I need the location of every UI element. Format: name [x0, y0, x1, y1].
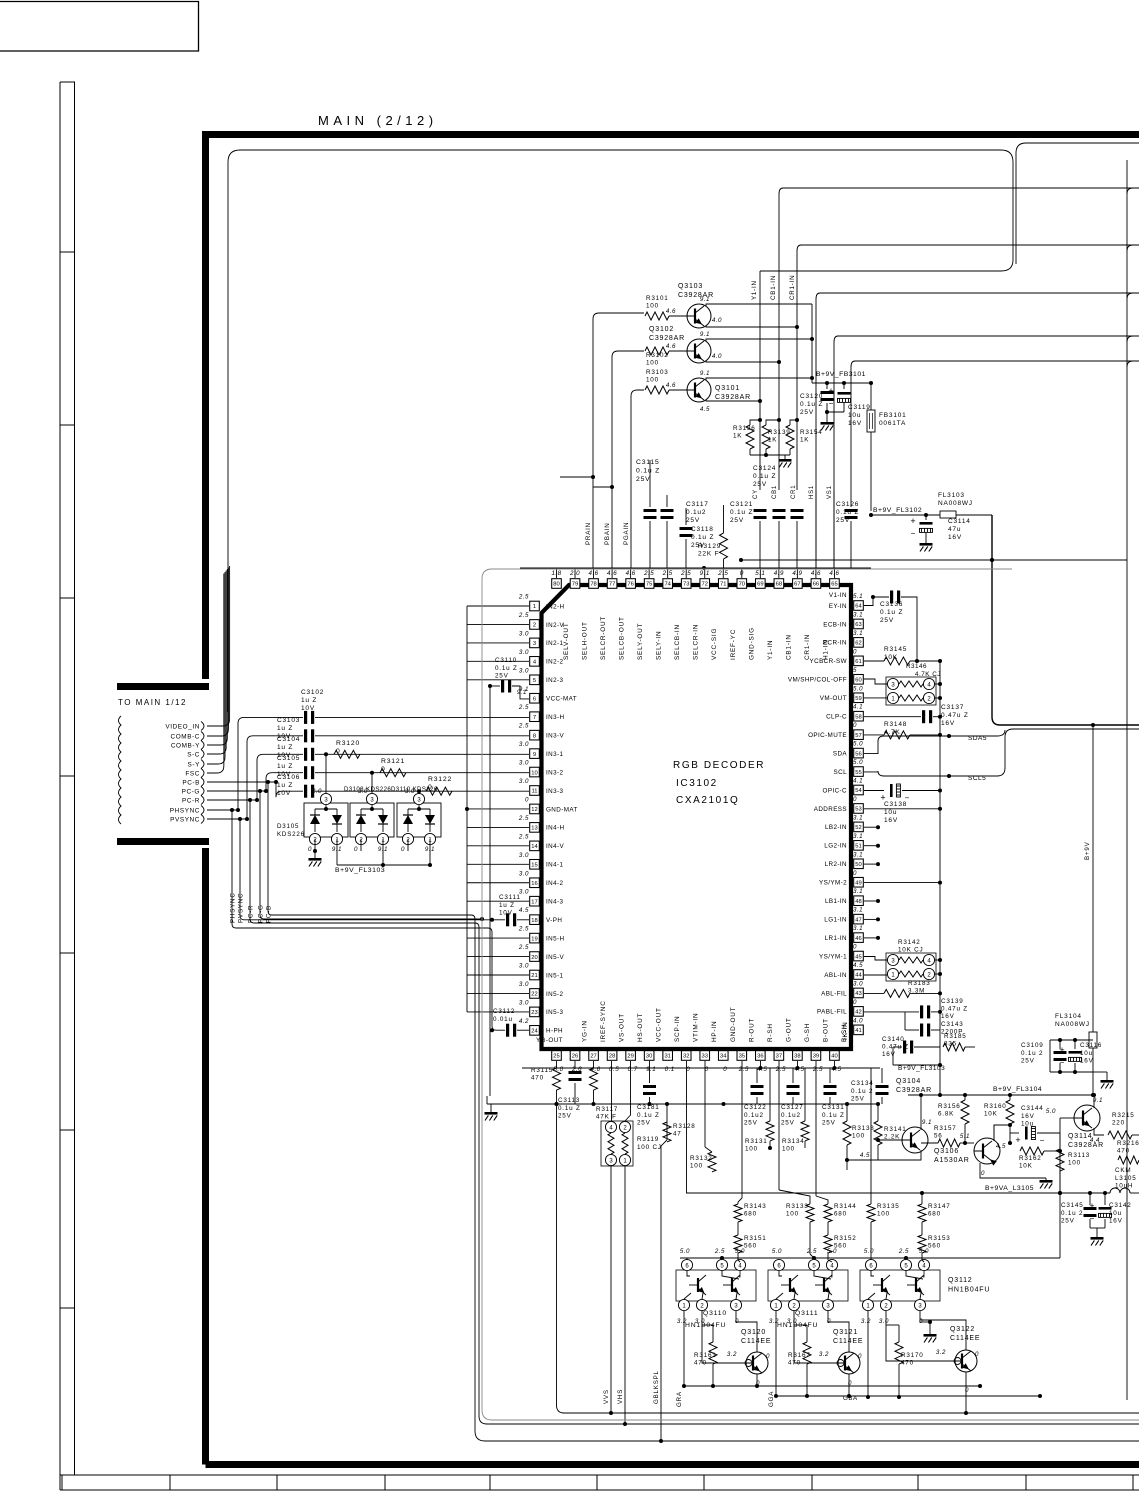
svg-text:10V: 10V — [499, 910, 513, 917]
svg-text:50: 50 — [855, 862, 861, 868]
svg-text:R3122: R3122 — [428, 776, 452, 783]
svg-text:2.5: 2.5 — [898, 1248, 909, 1255]
svg-text:HN1B04FU: HN1B04FU — [685, 1322, 726, 1329]
svg-text:EY-IN: EY-IN — [829, 603, 847, 610]
svg-text:C3114: C3114 — [948, 518, 971, 525]
svg-text:5: 5 — [853, 667, 857, 674]
svg-text:C3122: C3122 — [744, 1104, 767, 1111]
svg-text:VCC-SIG: VCC-SIG — [711, 628, 718, 660]
svg-text:IN4-3: IN4-3 — [546, 899, 563, 906]
svg-text:3.0: 3.0 — [519, 649, 529, 656]
svg-text:R3154: R3154 — [800, 429, 823, 436]
svg-text:IN4-V: IN4-V — [546, 843, 564, 850]
svg-text:H1-IN: H1-IN — [822, 639, 829, 660]
svg-text:B-SH: B-SH — [841, 1024, 848, 1042]
svg-text:SDA: SDA — [833, 750, 848, 757]
svg-text:R3151: R3151 — [744, 1235, 767, 1242]
svg-text:R3147: R3147 — [928, 1203, 951, 1210]
svg-text:80: 80 — [553, 582, 559, 588]
svg-text:3.0: 3.0 — [519, 760, 529, 767]
svg-text:R3148: R3148 — [884, 721, 907, 728]
svg-text:21: 21 — [531, 973, 537, 979]
svg-text:0: 0 — [853, 648, 857, 655]
svg-text:C3116: C3116 — [1080, 1042, 1102, 1049]
svg-text:1u Z: 1u Z — [277, 782, 293, 789]
svg-text:C3124: C3124 — [753, 465, 776, 472]
svg-text:0.1u Z: 0.1u Z — [558, 1105, 581, 1112]
svg-text:3.0: 3.0 — [519, 667, 529, 674]
svg-text:5.0: 5.0 — [853, 685, 863, 692]
svg-text:16V: 16V — [948, 534, 962, 541]
svg-text:9.1: 9.1 — [646, 1066, 656, 1073]
svg-text:D3105: D3105 — [277, 823, 299, 830]
svg-text:0.1u2: 0.1u2 — [686, 509, 706, 516]
svg-text:25V: 25V — [800, 409, 814, 416]
svg-text:R3120: R3120 — [336, 740, 360, 747]
svg-text:5.0: 5.0 — [919, 1248, 929, 1255]
svg-text:+: + — [910, 516, 915, 526]
svg-text:0.1u 2: 0.1u 2 — [851, 1088, 873, 1095]
svg-text:FSC: FSC — [185, 770, 200, 777]
svg-text:5.1: 5.1 — [853, 593, 863, 600]
svg-text:0.1u 2: 0.1u 2 — [1061, 1210, 1083, 1217]
svg-text:FL3103: FL3103 — [938, 492, 965, 499]
svg-text:IN5-3: IN5-3 — [546, 1009, 563, 1016]
svg-text:−: − — [829, 399, 834, 408]
svg-text:2.0: 2.0 — [569, 570, 580, 577]
svg-text:27: 27 — [590, 1054, 596, 1060]
svg-text:42: 42 — [855, 1010, 861, 1016]
svg-text:SCL5: SCL5 — [968, 775, 986, 782]
svg-text:ECB-IN: ECB-IN — [823, 621, 847, 628]
svg-text:5.0: 5.0 — [735, 1248, 745, 1255]
svg-text:26: 26 — [572, 1054, 578, 1060]
svg-text:14: 14 — [531, 844, 538, 850]
svg-text:C3127: C3127 — [781, 1104, 804, 1111]
svg-text:47: 47 — [855, 917, 861, 923]
svg-text:C3111: C3111 — [499, 894, 521, 901]
svg-text:18: 18 — [531, 918, 537, 924]
svg-text:59: 59 — [855, 696, 861, 702]
svg-text:4.1: 4.1 — [853, 704, 863, 711]
svg-text:100: 100 — [646, 376, 659, 383]
svg-text:PC-R: PC-R — [182, 797, 200, 804]
svg-text:−: − — [911, 529, 916, 538]
svg-text:IREF-YC: IREF-YC — [730, 629, 737, 660]
svg-text:3.0: 3.0 — [519, 778, 529, 785]
svg-text:HS-OUT: HS-OUT — [637, 1013, 644, 1042]
svg-text:LB1-IN: LB1-IN — [825, 898, 847, 905]
svg-text:3.2: 3.2 — [936, 1349, 946, 1356]
svg-text:25V: 25V — [1061, 1218, 1075, 1225]
svg-text:Q3110: Q3110 — [703, 1310, 727, 1317]
svg-text:C3181: C3181 — [637, 1104, 660, 1111]
svg-text:VTIM-IN: VTIM-IN — [693, 1013, 700, 1042]
svg-text:C114EE: C114EE — [833, 1338, 863, 1345]
svg-text:3.0: 3.0 — [519, 963, 529, 970]
svg-text:4.7K: 4.7K — [884, 729, 901, 736]
svg-text:41: 41 — [855, 1028, 861, 1034]
svg-text:R3162: R3162 — [1019, 1155, 1042, 1162]
svg-text:65: 65 — [831, 582, 837, 588]
svg-text:C114EE: C114EE — [741, 1338, 771, 1345]
svg-text:10u: 10u — [1080, 1050, 1093, 1057]
svg-text:0: 0 — [858, 1353, 862, 1360]
svg-text:0.47u Z: 0.47u Z — [941, 1006, 968, 1013]
svg-text:470: 470 — [694, 1359, 707, 1366]
svg-text:28: 28 — [609, 1054, 615, 1060]
svg-text:5.0: 5.0 — [1046, 1108, 1056, 1115]
svg-text:−: − — [1090, 1214, 1095, 1223]
svg-text:1u Z: 1u Z — [301, 697, 317, 704]
svg-text:5.0: 5.0 — [853, 759, 863, 766]
svg-text:62: 62 — [855, 641, 861, 647]
svg-text:3.0: 3.0 — [312, 788, 322, 795]
svg-text:470: 470 — [901, 1359, 914, 1366]
svg-text:30: 30 — [646, 1054, 652, 1060]
svg-text:77: 77 — [609, 582, 615, 588]
svg-text:79: 79 — [572, 582, 578, 588]
svg-text:CY: CY — [753, 489, 759, 499]
svg-text:63: 63 — [855, 622, 861, 628]
svg-text:0.1u Z: 0.1u Z — [800, 401, 823, 408]
svg-text:SCP-IN: SCP-IN — [674, 1016, 681, 1042]
svg-text:C3115: C3115 — [636, 459, 660, 466]
svg-text:C3143: C3143 — [941, 1021, 964, 1028]
svg-text:C3120: C3120 — [800, 393, 823, 400]
svg-text:10K: 10K — [984, 1111, 998, 1118]
svg-text:R3142: R3142 — [898, 939, 921, 946]
svg-text:0: 0 — [853, 722, 857, 729]
svg-text:9.1: 9.1 — [700, 331, 710, 338]
svg-text:10K: 10K — [1019, 1163, 1033, 1170]
svg-text:9.1: 9.1 — [700, 370, 710, 377]
svg-text:R3156: R3156 — [938, 1103, 961, 1110]
svg-text:2.5: 2.5 — [518, 723, 529, 730]
svg-text:1u Z: 1u Z — [277, 744, 293, 751]
svg-text:B+9V_FL3103: B+9V_FL3103 — [335, 867, 385, 874]
svg-text:SELCR-IN: SELCR-IN — [693, 624, 700, 660]
svg-text:2.5: 2.5 — [518, 944, 529, 951]
svg-text:0.1u2: 0.1u2 — [781, 1112, 801, 1119]
svg-text:IN2-H: IN2-H — [546, 603, 564, 610]
svg-text:3: 3 — [533, 641, 536, 647]
svg-text:Y1-IN: Y1-IN — [751, 280, 758, 300]
svg-text:3.0: 3.0 — [853, 980, 863, 987]
svg-text:0.5: 0.5 — [609, 1066, 619, 1073]
svg-text:16V: 16V — [941, 1013, 955, 1020]
svg-text:7: 7 — [533, 715, 536, 721]
svg-text:5.0: 5.0 — [553, 1066, 563, 1073]
svg-text:69: 69 — [757, 582, 763, 588]
svg-text:19: 19 — [531, 936, 537, 942]
svg-text:GGA: GGA — [768, 1391, 775, 1407]
svg-text:IN2-2: IN2-2 — [546, 659, 563, 666]
svg-text:Q3101: Q3101 — [715, 385, 740, 392]
svg-text:SELY-IN: SELY-IN — [656, 631, 663, 660]
svg-text:VCC-OUT: VCC-OUT — [656, 1007, 663, 1042]
svg-text:B+9V_FL3102: B+9V_FL3102 — [873, 507, 922, 514]
svg-text:34: 34 — [720, 1054, 727, 1060]
svg-text:10V: 10V — [301, 705, 315, 712]
svg-text:Q3114: Q3114 — [1068, 1133, 1093, 1140]
svg-text:0: 0 — [981, 1170, 985, 1177]
svg-text:GRA: GRA — [676, 1391, 683, 1407]
svg-text:2.5: 2.5 — [806, 1248, 817, 1255]
svg-text:C3139: C3139 — [941, 998, 964, 1005]
svg-text:R3141: R3141 — [884, 1126, 907, 1133]
svg-text:R3167: R3167 — [788, 1352, 811, 1359]
svg-text:53: 53 — [855, 807, 861, 813]
svg-text:5.0: 5.0 — [772, 1248, 782, 1255]
svg-text:0061TA: 0061TA — [879, 420, 906, 427]
svg-text:40: 40 — [831, 1054, 837, 1060]
svg-text:4.6: 4.6 — [666, 343, 676, 350]
svg-text:C3142: C3142 — [1109, 1202, 1132, 1209]
svg-text:C3121: C3121 — [730, 501, 753, 508]
svg-text:IN5-V: IN5-V — [546, 954, 564, 961]
svg-text:C114EE: C114EE — [950, 1335, 980, 1342]
svg-text:3.1: 3.1 — [853, 888, 863, 895]
svg-text:2.5: 2.5 — [518, 926, 529, 933]
svg-text:12: 12 — [531, 807, 537, 813]
svg-text:2.5: 2.5 — [518, 612, 529, 619]
svg-text:4.5: 4.5 — [700, 406, 710, 413]
svg-text:100: 100 — [646, 359, 659, 366]
svg-text:67: 67 — [794, 582, 800, 588]
svg-text:COMB-C: COMB-C — [170, 733, 200, 740]
svg-text:IN5-1: IN5-1 — [546, 972, 563, 979]
svg-text:B+9V_FB3101: B+9V_FB3101 — [816, 371, 866, 378]
svg-text:16V: 16V — [1080, 1058, 1094, 1065]
svg-text:25V: 25V — [822, 1120, 836, 1127]
svg-text:HN1B04FU: HN1B04FU — [948, 1287, 990, 1294]
svg-text:1: 1 — [533, 604, 536, 610]
svg-text:0.7: 0.7 — [628, 1066, 638, 1073]
svg-text:2.5: 2.5 — [643, 570, 654, 577]
svg-text:23: 23 — [531, 1010, 537, 1016]
svg-text:16V: 16V — [884, 817, 898, 824]
svg-text:335: 335 — [944, 1040, 957, 1047]
svg-text:1u Z: 1u Z — [277, 763, 293, 770]
svg-text:SELY-OUT: SELY-OUT — [637, 623, 644, 660]
svg-text:10V: 10V — [277, 790, 291, 797]
svg-text:76: 76 — [627, 582, 633, 588]
svg-text:SDA5: SDA5 — [968, 735, 987, 742]
svg-text:R3117: R3117 — [596, 1106, 618, 1113]
svg-text:IN3-V: IN3-V — [546, 732, 564, 739]
svg-text:Q3102: Q3102 — [649, 326, 674, 333]
svg-text:9: 9 — [533, 752, 536, 758]
svg-text:R3113: R3113 — [1068, 1152, 1090, 1159]
svg-text:C3145: C3145 — [1061, 1202, 1084, 1209]
svg-text:C3105: C3105 — [277, 755, 300, 762]
svg-text:YG-IN: YG-IN — [582, 1020, 589, 1042]
svg-text:25V: 25V — [730, 517, 744, 524]
svg-text:3.0: 3.0 — [519, 741, 529, 748]
svg-text:Q3120: Q3120 — [741, 1329, 766, 1336]
svg-text:2.5: 2.5 — [662, 570, 673, 577]
svg-text:ADDRESS: ADDRESS — [814, 806, 847, 813]
svg-text:16V: 16V — [1109, 1218, 1123, 1225]
svg-text:16V: 16V — [882, 1051, 896, 1058]
svg-text:IN5-H: IN5-H — [546, 935, 564, 942]
svg-text:8: 8 — [533, 733, 536, 739]
svg-text:2.5: 2.5 — [518, 594, 529, 601]
svg-text:C3134: C3134 — [851, 1080, 874, 1087]
svg-text:V1-IN: V1-IN — [829, 592, 847, 599]
svg-text:4.5: 4.5 — [860, 1152, 870, 1159]
svg-text:HS1: HS1 — [809, 485, 815, 499]
svg-text:C3118: C3118 — [691, 526, 714, 533]
svg-text:FB3101: FB3101 — [879, 412, 907, 419]
svg-text:CKM: CKM — [1115, 1167, 1131, 1174]
svg-text:R3135: R3135 — [877, 1203, 900, 1210]
svg-text:R3161: R3161 — [694, 1352, 717, 1359]
svg-text:13: 13 — [531, 826, 537, 832]
svg-text:S-C: S-C — [187, 751, 200, 758]
svg-text:SELCB-IN: SELCB-IN — [674, 624, 681, 660]
svg-text:VCC-MAT: VCC-MAT — [546, 696, 577, 703]
svg-text:R3185: R3185 — [944, 1033, 967, 1040]
svg-text:LR2-IN: LR2-IN — [825, 861, 847, 868]
svg-text:C3131: C3131 — [822, 1104, 845, 1111]
svg-text:100 CJ: 100 CJ — [637, 1144, 662, 1151]
svg-text:VS-OUT: VS-OUT — [619, 1013, 626, 1042]
svg-text:10K CJ: 10K CJ — [898, 947, 923, 954]
svg-text:R3216: R3216 — [1117, 1140, 1139, 1147]
svg-text:3.0: 3.0 — [519, 852, 529, 859]
svg-text:C3106: C3106 — [277, 774, 300, 781]
svg-text:44: 44 — [855, 973, 862, 979]
svg-text:2.5: 2.5 — [717, 570, 728, 577]
svg-text:R3157: R3157 — [934, 1125, 957, 1132]
svg-text:25V: 25V — [836, 517, 850, 524]
svg-text:2.5: 2.5 — [714, 1248, 725, 1255]
svg-text:G-OUT: G-OUT — [785, 1017, 792, 1042]
svg-text:3.2: 3.2 — [819, 1351, 829, 1358]
svg-text:3.2: 3.2 — [861, 1318, 871, 1325]
svg-text:680: 680 — [744, 1210, 757, 1217]
svg-text:HN1B04FU: HN1B04FU — [777, 1322, 818, 1329]
svg-text:52: 52 — [855, 825, 861, 831]
svg-text:0.47u Z: 0.47u Z — [882, 1044, 909, 1051]
svg-text:0.1u Z: 0.1u Z — [836, 509, 859, 516]
svg-text:55: 55 — [855, 770, 861, 776]
svg-text:74: 74 — [664, 582, 671, 588]
svg-text:0.1u Z: 0.1u Z — [495, 665, 518, 672]
svg-text:2: 2 — [533, 623, 536, 629]
svg-text:C3144: C3144 — [1021, 1105, 1044, 1112]
svg-text:VM-OUT: VM-OUT — [820, 695, 847, 702]
svg-text:0.1u Z: 0.1u Z — [880, 609, 903, 616]
svg-text:CR1: CR1 — [791, 485, 797, 499]
svg-text:680: 680 — [834, 1210, 847, 1217]
svg-text:25V: 25V — [753, 481, 767, 488]
svg-text:RGB DECODER: RGB DECODER — [673, 760, 765, 771]
svg-text:OPIC-C: OPIC-C — [823, 787, 847, 794]
svg-text:560: 560 — [928, 1242, 941, 1249]
svg-text:IN3-1: IN3-1 — [546, 751, 563, 758]
svg-text:CB1-IN: CB1-IN — [770, 275, 777, 300]
svg-text:Q3103: Q3103 — [678, 283, 703, 290]
svg-text:PC-R: PC-R — [248, 905, 255, 923]
svg-text:49: 49 — [855, 880, 861, 886]
svg-text:4.0: 4.0 — [712, 353, 722, 360]
svg-text:4.2: 4.2 — [519, 1018, 529, 1025]
svg-text:0: 0 — [766, 1353, 770, 1360]
svg-text:PC-G: PC-G — [258, 904, 265, 923]
svg-text:3.0: 3.0 — [519, 630, 529, 637]
svg-text:4.5: 4.5 — [996, 1143, 1006, 1150]
svg-text:3.1: 3.1 — [853, 833, 863, 840]
svg-text:3.0: 3.0 — [879, 1318, 889, 1325]
svg-text:0: 0 — [525, 796, 529, 803]
svg-text:1u Z: 1u Z — [277, 725, 293, 732]
svg-text:25V: 25V — [744, 1120, 758, 1127]
svg-text:29: 29 — [627, 1054, 633, 1060]
svg-text:100: 100 — [877, 1210, 890, 1217]
svg-text:25V: 25V — [636, 476, 651, 483]
svg-text:470: 470 — [531, 1074, 544, 1081]
svg-text:C3113: C3113 — [558, 1097, 580, 1104]
svg-text:R3133: R3133 — [786, 1203, 809, 1210]
svg-text:1K: 1K — [733, 432, 742, 439]
svg-text:C3102: C3102 — [301, 689, 324, 696]
svg-text:R3101: R3101 — [646, 295, 669, 302]
svg-text:H-PH: H-PH — [546, 1028, 563, 1035]
svg-text:+: + — [828, 386, 833, 396]
svg-text:4.0: 4.0 — [853, 1017, 863, 1024]
svg-text:70: 70 — [739, 582, 745, 588]
svg-text:CB1-IN: CB1-IN — [785, 634, 792, 660]
svg-text:51: 51 — [855, 844, 861, 850]
svg-text:38: 38 — [794, 1054, 800, 1060]
svg-text:3.1: 3.1 — [853, 907, 863, 914]
svg-text:9.1: 9.1 — [922, 1119, 932, 1126]
svg-text:CXA2101Q: CXA2101Q — [676, 795, 739, 806]
svg-text:5.0: 5.0 — [853, 741, 863, 748]
svg-text:0.1: 0.1 — [665, 1066, 675, 1073]
svg-text:S-Y: S-Y — [188, 761, 201, 768]
svg-text:2.2K: 2.2K — [884, 1133, 900, 1140]
svg-text:2.5: 2.5 — [812, 1066, 823, 1073]
svg-text:20: 20 — [531, 955, 537, 961]
svg-text:43: 43 — [855, 991, 861, 997]
svg-text:C3138: C3138 — [884, 801, 907, 808]
svg-text:ABL-FIL: ABL-FIL — [821, 990, 847, 997]
svg-text:C3136: C3136 — [880, 601, 903, 608]
svg-text:B+9V_FL3103: B+9V_FL3103 — [898, 1065, 945, 1072]
svg-text:5.0: 5.0 — [864, 1248, 874, 1255]
svg-text:R3115: R3115 — [531, 1067, 553, 1074]
svg-text:IC3102: IC3102 — [676, 778, 718, 789]
svg-text:32: 32 — [683, 1054, 689, 1060]
svg-text:R3215: R3215 — [1112, 1112, 1135, 1119]
svg-text:YG-OUT: YG-OUT — [536, 1037, 563, 1044]
svg-text:2.5: 2.5 — [518, 833, 529, 840]
svg-text:16V: 16V — [1021, 1113, 1035, 1120]
svg-text:45: 45 — [855, 954, 861, 960]
svg-text:C3126: C3126 — [836, 501, 859, 508]
svg-text:25V: 25V — [1021, 1058, 1035, 1065]
svg-text:C3140: C3140 — [882, 1036, 905, 1043]
svg-text:39: 39 — [813, 1054, 819, 1060]
svg-text:22: 22 — [531, 992, 537, 998]
svg-text:1K: 1K — [768, 436, 777, 443]
svg-text:4.6: 4.6 — [666, 382, 676, 389]
svg-text:25V: 25V — [558, 1113, 572, 1120]
